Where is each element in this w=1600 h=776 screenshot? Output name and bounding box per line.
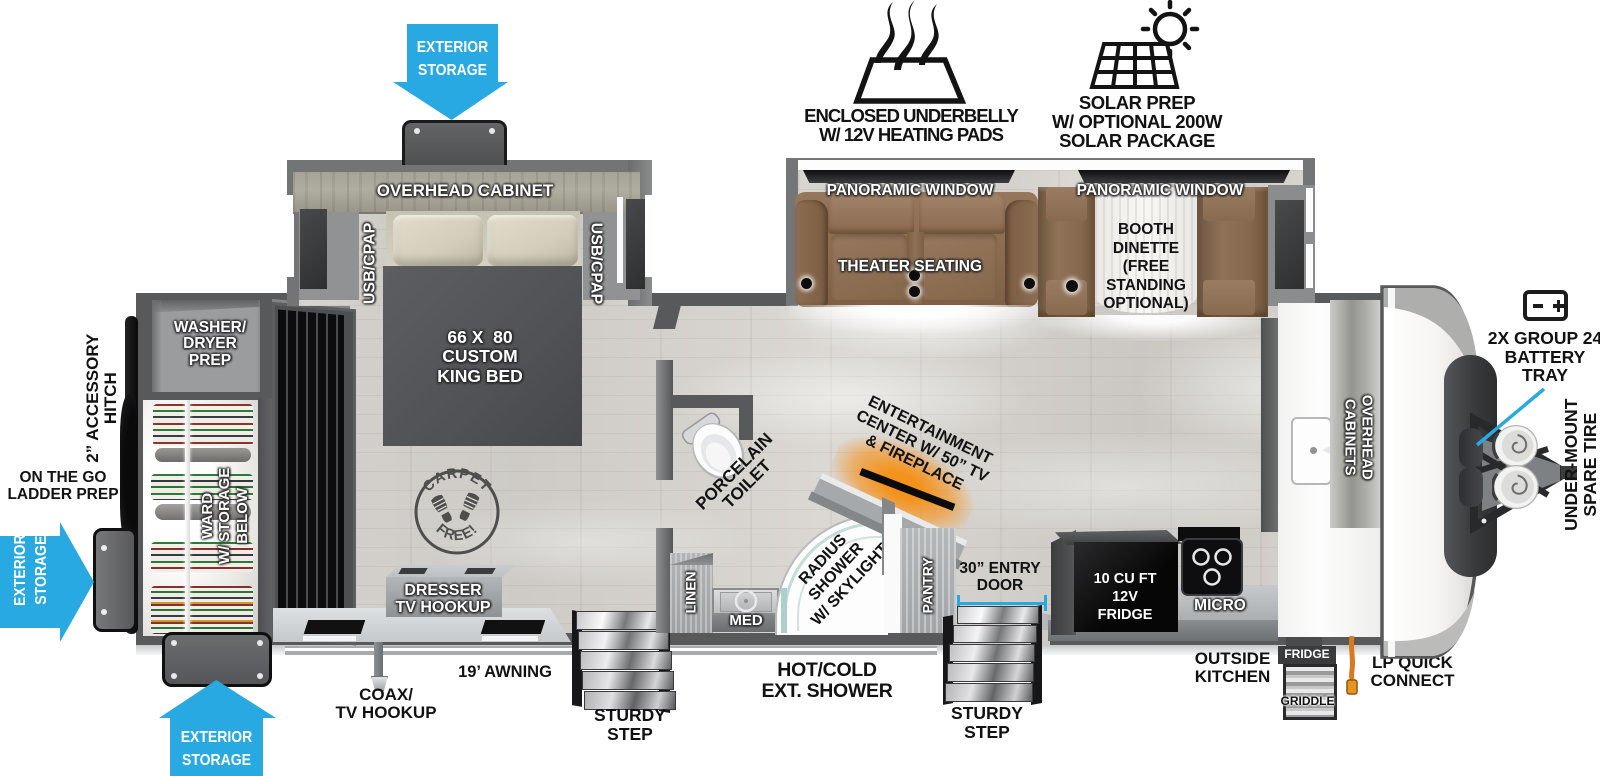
svg-text:FREE!: FREE!	[433, 521, 481, 544]
